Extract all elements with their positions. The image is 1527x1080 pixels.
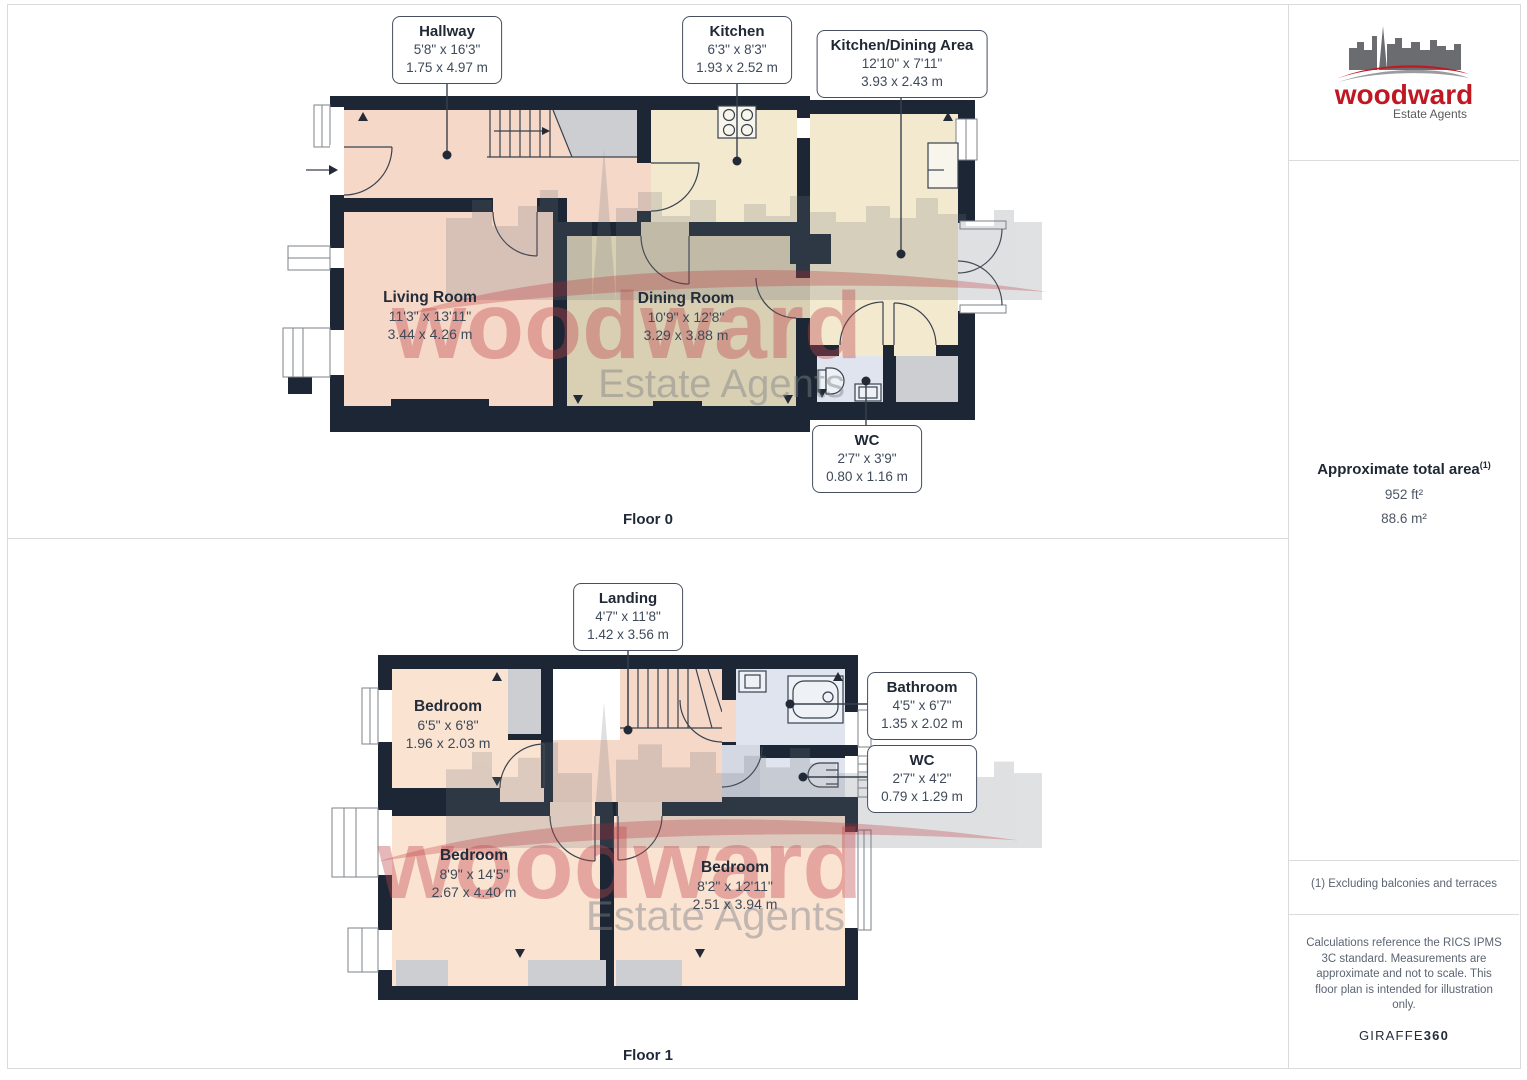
sidebar-divider xyxy=(1289,860,1519,861)
room-size-metric: 0.80 x 1.16 m xyxy=(826,468,908,486)
floorplan-page: woodward Estate Agents woodward Estate A… xyxy=(0,0,1527,1080)
room-size-metric: 3.93 x 2.43 m xyxy=(831,73,974,91)
room-size-imperial: 6'5" x 6'8" xyxy=(406,716,491,734)
room-size-imperial: 2'7" x 4'2" xyxy=(881,770,963,788)
floor1-caption: Floor 1 xyxy=(623,1047,673,1064)
room-title: Bathroom xyxy=(881,678,963,697)
area-footnote: (1) Excluding balconies and terraces xyxy=(1289,878,1519,890)
logo-tagline-text: Estate Agents xyxy=(1393,107,1467,121)
room-label-bedroom-left: Bedroom 8'9" x 14'5" 2.67 x 4.40 m xyxy=(432,846,517,901)
room-label-bedroom-small: Bedroom 6'5" x 6'8" 1.96 x 2.03 m xyxy=(406,697,491,752)
room-title: Dining Room xyxy=(638,289,734,308)
room-title: Landing xyxy=(587,589,669,608)
total-area-imperial: 952 ft² xyxy=(1289,487,1519,502)
total-area-metric: 88.6 m² xyxy=(1289,511,1519,526)
total-area-title-text: Approximate total area xyxy=(1317,461,1480,478)
room-label-bedroom-right: Bedroom 8'2" x 12'11" 2.51 x 3.94 m xyxy=(693,858,778,913)
provider-name: GIRAFFE xyxy=(1359,1028,1424,1043)
room-size-metric: 1.93 x 2.52 m xyxy=(696,59,778,77)
agency-logo: woodward Estate Agents xyxy=(1319,18,1489,133)
room-label-box-kitchen: Kitchen 6'3" x 8'3" 1.93 x 2.52 m xyxy=(682,16,792,84)
room-size-imperial: 4'5" x 6'7" xyxy=(881,697,963,715)
disclaimer-text: Calculations reference the RICS IPMS 3C … xyxy=(1304,936,1504,1014)
room-title: WC xyxy=(881,751,963,770)
room-size-metric: 1.35 x 2.02 m xyxy=(881,715,963,733)
room-title: Bedroom xyxy=(693,858,778,877)
total-area-summary: Approximate total area(1) 952 ft² 88.6 m… xyxy=(1289,460,1519,526)
info-sidebar: woodward Estate Agents Approximate total… xyxy=(1289,4,1519,1068)
agency-logo-graphic: woodward Estate Agents xyxy=(1319,18,1489,128)
room-label-dining-room: Dining Room 10'9" x 12'8" 3.29 x 3.88 m xyxy=(638,289,734,344)
room-title: Bedroom xyxy=(432,846,517,865)
room-title: WC xyxy=(826,431,908,450)
room-label-box-wc-floor1: WC 2'7" x 4'2" 0.79 x 1.29 m xyxy=(867,745,977,813)
room-size-imperial: 6'3" x 8'3" xyxy=(696,41,778,59)
room-size-imperial: 5'8" x 16'3" xyxy=(406,41,488,59)
room-title: Kitchen xyxy=(696,22,778,41)
sidebar-divider xyxy=(1289,160,1519,161)
total-area-title: Approximate total area(1) xyxy=(1289,460,1519,478)
room-title: Hallway xyxy=(406,22,488,41)
room-size-imperial: 11'3" x 13'11" xyxy=(383,307,477,325)
room-size-metric: 2.51 x 3.94 m xyxy=(693,895,778,913)
room-size-imperial: 10'9" x 12'8" xyxy=(638,308,734,326)
room-size-imperial: 2'7" x 3'9" xyxy=(826,450,908,468)
room-size-imperial: 8'2" x 12'11" xyxy=(693,877,778,895)
room-label-box-wc-floor0: WC 2'7" x 3'9" 0.80 x 1.16 m xyxy=(812,425,922,493)
room-title: Kitchen/Dining Area xyxy=(831,36,974,55)
sidebar-border xyxy=(1288,4,1289,1068)
room-size-metric: 1.42 x 3.56 m xyxy=(587,626,669,644)
room-label-box-bathroom: Bathroom 4'5" x 6'7" 1.35 x 2.02 m xyxy=(867,672,977,740)
room-title: Living Room xyxy=(383,288,477,307)
room-size-metric: 1.75 x 4.97 m xyxy=(406,59,488,77)
floor-divider xyxy=(8,538,1288,539)
room-label-box-kitchen-dining: Kitchen/Dining Area 12'10" x 7'11" 3.93 … xyxy=(817,30,988,98)
room-size-imperial: 8'9" x 14'5" xyxy=(432,865,517,883)
room-size-imperial: 4'7" x 11'8" xyxy=(587,608,669,626)
room-label-box-landing: Landing 4'7" x 11'8" 1.42 x 3.56 m xyxy=(573,583,683,651)
sidebar-divider xyxy=(1289,914,1519,915)
floor0-caption: Floor 0 xyxy=(623,511,673,528)
room-size-metric: 0.79 x 1.29 m xyxy=(881,788,963,806)
room-size-metric: 3.29 x 3.88 m xyxy=(638,326,734,344)
room-size-metric: 1.96 x 2.03 m xyxy=(406,734,491,752)
room-label-box-hallway: Hallway 5'8" x 16'3" 1.75 x 4.97 m xyxy=(392,16,502,84)
provider-brand: GIRAFFE360 xyxy=(1289,1028,1519,1043)
room-title: Bedroom xyxy=(406,697,491,716)
room-label-living-room: Living Room 11'3" x 13'11" 3.44 x 4.26 m xyxy=(383,288,477,343)
logo-brand-text: woodward xyxy=(1334,79,1473,110)
logo-skyline xyxy=(1349,26,1461,70)
room-size-imperial: 12'10" x 7'11" xyxy=(831,55,974,73)
total-area-footnote-marker: (1) xyxy=(1480,460,1491,470)
provider-suffix: 360 xyxy=(1424,1028,1449,1043)
room-size-metric: 2.67 x 4.40 m xyxy=(432,883,517,901)
room-size-metric: 3.44 x 4.26 m xyxy=(383,325,477,343)
watermark-tagline-floor0: Estate Agents xyxy=(598,362,845,406)
